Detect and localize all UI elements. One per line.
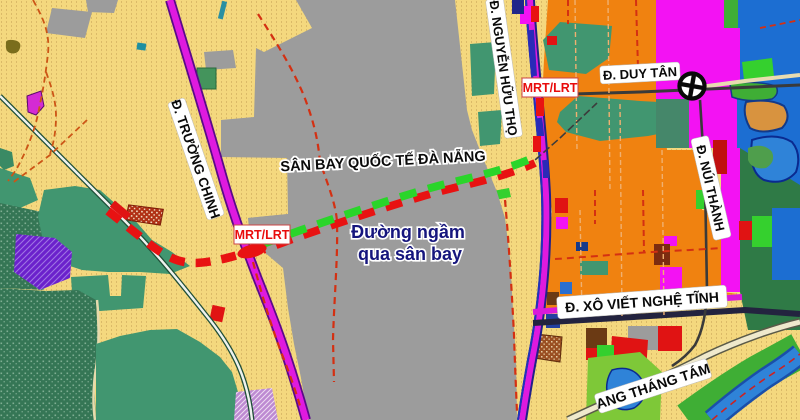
svg-text:qua sân bay: qua sân bay	[358, 244, 462, 264]
svg-text:MRT/LRT: MRT/LRT	[523, 81, 578, 95]
svg-text:MRT/LRT: MRT/LRT	[235, 228, 290, 242]
svg-text:Đường ngầm: Đường ngầm	[351, 222, 465, 242]
